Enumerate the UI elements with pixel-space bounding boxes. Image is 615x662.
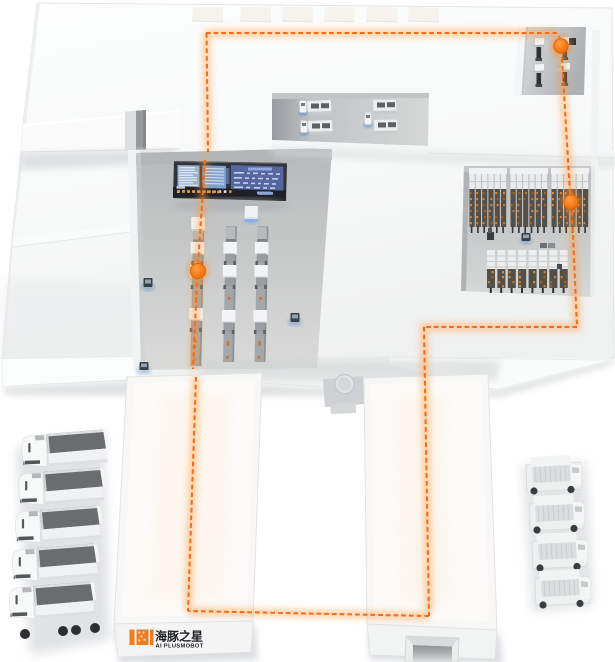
svg-text:海豚之星: 海豚之星 xyxy=(155,629,203,644)
svg-text:AI PLUSMOBOT: AI PLUSMOBOT xyxy=(156,644,204,650)
